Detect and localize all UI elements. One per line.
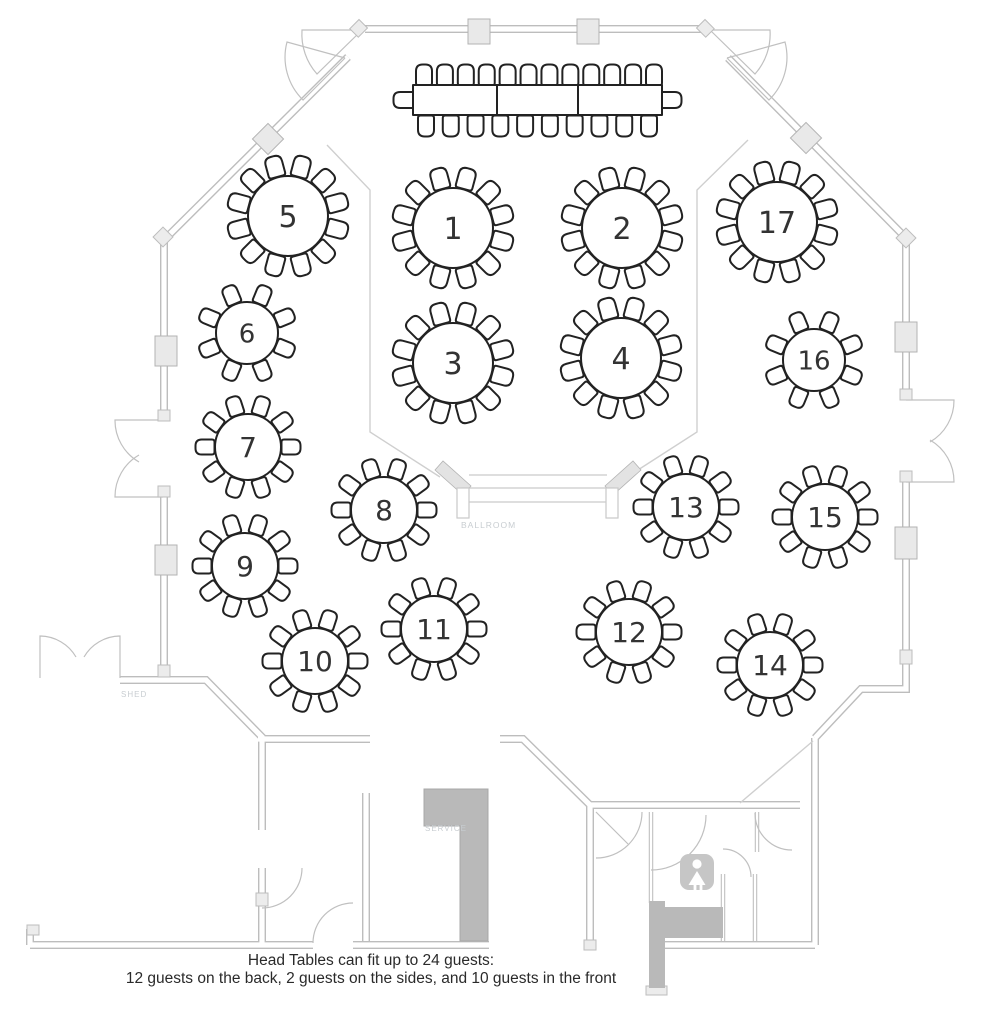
chair [623, 395, 645, 420]
table-9: 9 [193, 514, 298, 618]
chair [718, 658, 737, 673]
chair [500, 65, 516, 86]
chair [646, 65, 662, 86]
table-number: 15 [807, 501, 843, 534]
pillar [468, 19, 490, 44]
chair [562, 65, 578, 86]
table-number: 16 [797, 346, 830, 376]
chair [492, 116, 508, 137]
chair [325, 192, 350, 214]
chair [661, 92, 682, 108]
women-restroom-icon [680, 854, 714, 892]
chair [455, 301, 477, 326]
chair [634, 500, 653, 515]
chair [437, 65, 453, 86]
chair [715, 198, 740, 220]
chair [263, 654, 282, 669]
door-top-right-corner [710, 30, 787, 100]
chair [290, 154, 312, 179]
chair [753, 160, 775, 185]
floor-plan-svg: BALLROOM SHED SERVICE 123456789101112131… [0, 0, 998, 1024]
caption: Head Tables can fit up to 24 guests: 12 … [0, 952, 742, 988]
chair [663, 625, 682, 640]
chair [349, 654, 368, 669]
chair [479, 65, 495, 86]
table-14: 14 [718, 613, 823, 717]
chair [429, 265, 451, 290]
chair [541, 65, 557, 86]
chair [597, 395, 619, 420]
chair [468, 116, 484, 137]
chair [604, 65, 620, 86]
chair [559, 360, 584, 382]
door-right-wall [906, 400, 954, 482]
chair [196, 440, 215, 455]
chair [391, 204, 416, 226]
table-number: 13 [668, 491, 704, 524]
ballroom-label: BALLROOM [461, 520, 516, 530]
chair [429, 400, 451, 425]
table-6: 6 [197, 283, 296, 382]
chair [429, 301, 451, 326]
chair [567, 116, 583, 137]
table-number: 7 [239, 431, 257, 464]
chair [624, 265, 646, 290]
chair [429, 166, 451, 191]
table-number: 3 [443, 347, 462, 382]
table-number: 6 [239, 319, 256, 349]
pillar [895, 322, 917, 352]
chair [583, 65, 599, 86]
chair [641, 116, 657, 137]
chair [773, 510, 792, 525]
chair [616, 116, 632, 137]
chair [560, 204, 585, 226]
chair [753, 259, 775, 284]
chair [332, 503, 351, 518]
chair [658, 360, 683, 382]
table-13: 13 [634, 455, 739, 559]
table-number: 14 [752, 649, 788, 682]
chair [715, 224, 740, 246]
table-8: 8 [332, 458, 437, 562]
pillar [155, 545, 177, 575]
chair [624, 166, 646, 191]
door-shed [40, 636, 120, 678]
door-restroom-stall-3 [723, 849, 751, 877]
chair [468, 622, 487, 637]
chair [623, 296, 645, 321]
chair [325, 218, 350, 240]
chair [659, 204, 684, 226]
table-15: 15 [773, 465, 878, 569]
pillar [577, 19, 599, 44]
service-label: SERVICE [425, 824, 467, 833]
chair [591, 116, 607, 137]
head-table-section [497, 85, 578, 115]
chair [226, 218, 251, 240]
chair [394, 92, 415, 108]
head-table-section [413, 85, 497, 115]
table-number: 4 [611, 342, 630, 377]
chair [455, 265, 477, 290]
table-4: 4 [559, 296, 682, 419]
chair [264, 154, 286, 179]
table-12: 12 [577, 580, 682, 684]
chair [193, 559, 212, 574]
chair [779, 160, 801, 185]
chair [282, 440, 301, 455]
table-number: 12 [611, 616, 647, 649]
chair [391, 339, 416, 361]
chair [814, 224, 839, 246]
table-10: 10 [263, 609, 368, 713]
chair [226, 192, 251, 214]
chair [290, 253, 312, 278]
chair [279, 559, 298, 574]
chair [490, 230, 515, 252]
table-5: 5 [226, 154, 349, 277]
door-top-left-corner [285, 30, 362, 100]
table-number: 2 [612, 212, 631, 247]
chair [391, 230, 416, 252]
door-corridor-2 [313, 903, 353, 943]
chair [490, 339, 515, 361]
chair [521, 65, 537, 86]
chair [418, 503, 437, 518]
door-left-wall [115, 420, 163, 497]
chair [418, 116, 434, 137]
floor-plan-page: BALLROOM SHED SERVICE 123456789101112131… [0, 0, 998, 1024]
table-16: 16 [764, 310, 863, 409]
service-area [424, 789, 488, 941]
chair [382, 622, 401, 637]
chair [416, 65, 432, 86]
chair [560, 230, 585, 252]
chair [490, 204, 515, 226]
caption-line-1: Head Tables can fit up to 24 guests: [0, 952, 742, 970]
table-1: 1 [391, 166, 514, 289]
chair [859, 510, 878, 525]
table-number: 9 [236, 550, 254, 583]
chair [658, 334, 683, 356]
chair [625, 65, 641, 86]
table-number: 10 [297, 645, 333, 678]
table-number: 1 [443, 212, 462, 247]
pillar [155, 336, 177, 366]
entrance-steps [435, 461, 641, 518]
chair [490, 365, 515, 387]
chair [517, 116, 533, 137]
chair [391, 365, 416, 387]
chair [559, 334, 584, 356]
table-number: 5 [278, 200, 297, 235]
door-restroom-stall-2 [755, 813, 792, 850]
chair [577, 625, 596, 640]
shed-label: SHED [121, 690, 147, 699]
door-restroom-corner [596, 812, 642, 858]
guest-tables: 1234567891011121314151617 [193, 154, 878, 717]
chair [455, 166, 477, 191]
chair [597, 296, 619, 321]
chair [598, 166, 620, 191]
chair [659, 230, 684, 252]
table-7: 7 [196, 395, 301, 499]
table-11: 11 [382, 577, 487, 681]
caption-line-2: 12 guests on the back, 2 guests on the s… [0, 970, 742, 988]
chair [458, 65, 474, 86]
table-3: 3 [391, 301, 514, 424]
pillar [895, 527, 917, 559]
table-number: 17 [758, 206, 796, 241]
chair [443, 116, 459, 137]
head-table [394, 65, 682, 137]
chair [455, 400, 477, 425]
chair [779, 259, 801, 284]
chair [720, 500, 739, 515]
table-17: 17 [715, 160, 838, 283]
chair [264, 253, 286, 278]
chair [598, 265, 620, 290]
chair [804, 658, 823, 673]
table-2: 2 [560, 166, 683, 289]
head-table-section [578, 85, 662, 115]
table-number: 11 [416, 613, 452, 646]
table-number: 8 [375, 494, 393, 527]
chair [542, 116, 558, 137]
chair [814, 198, 839, 220]
